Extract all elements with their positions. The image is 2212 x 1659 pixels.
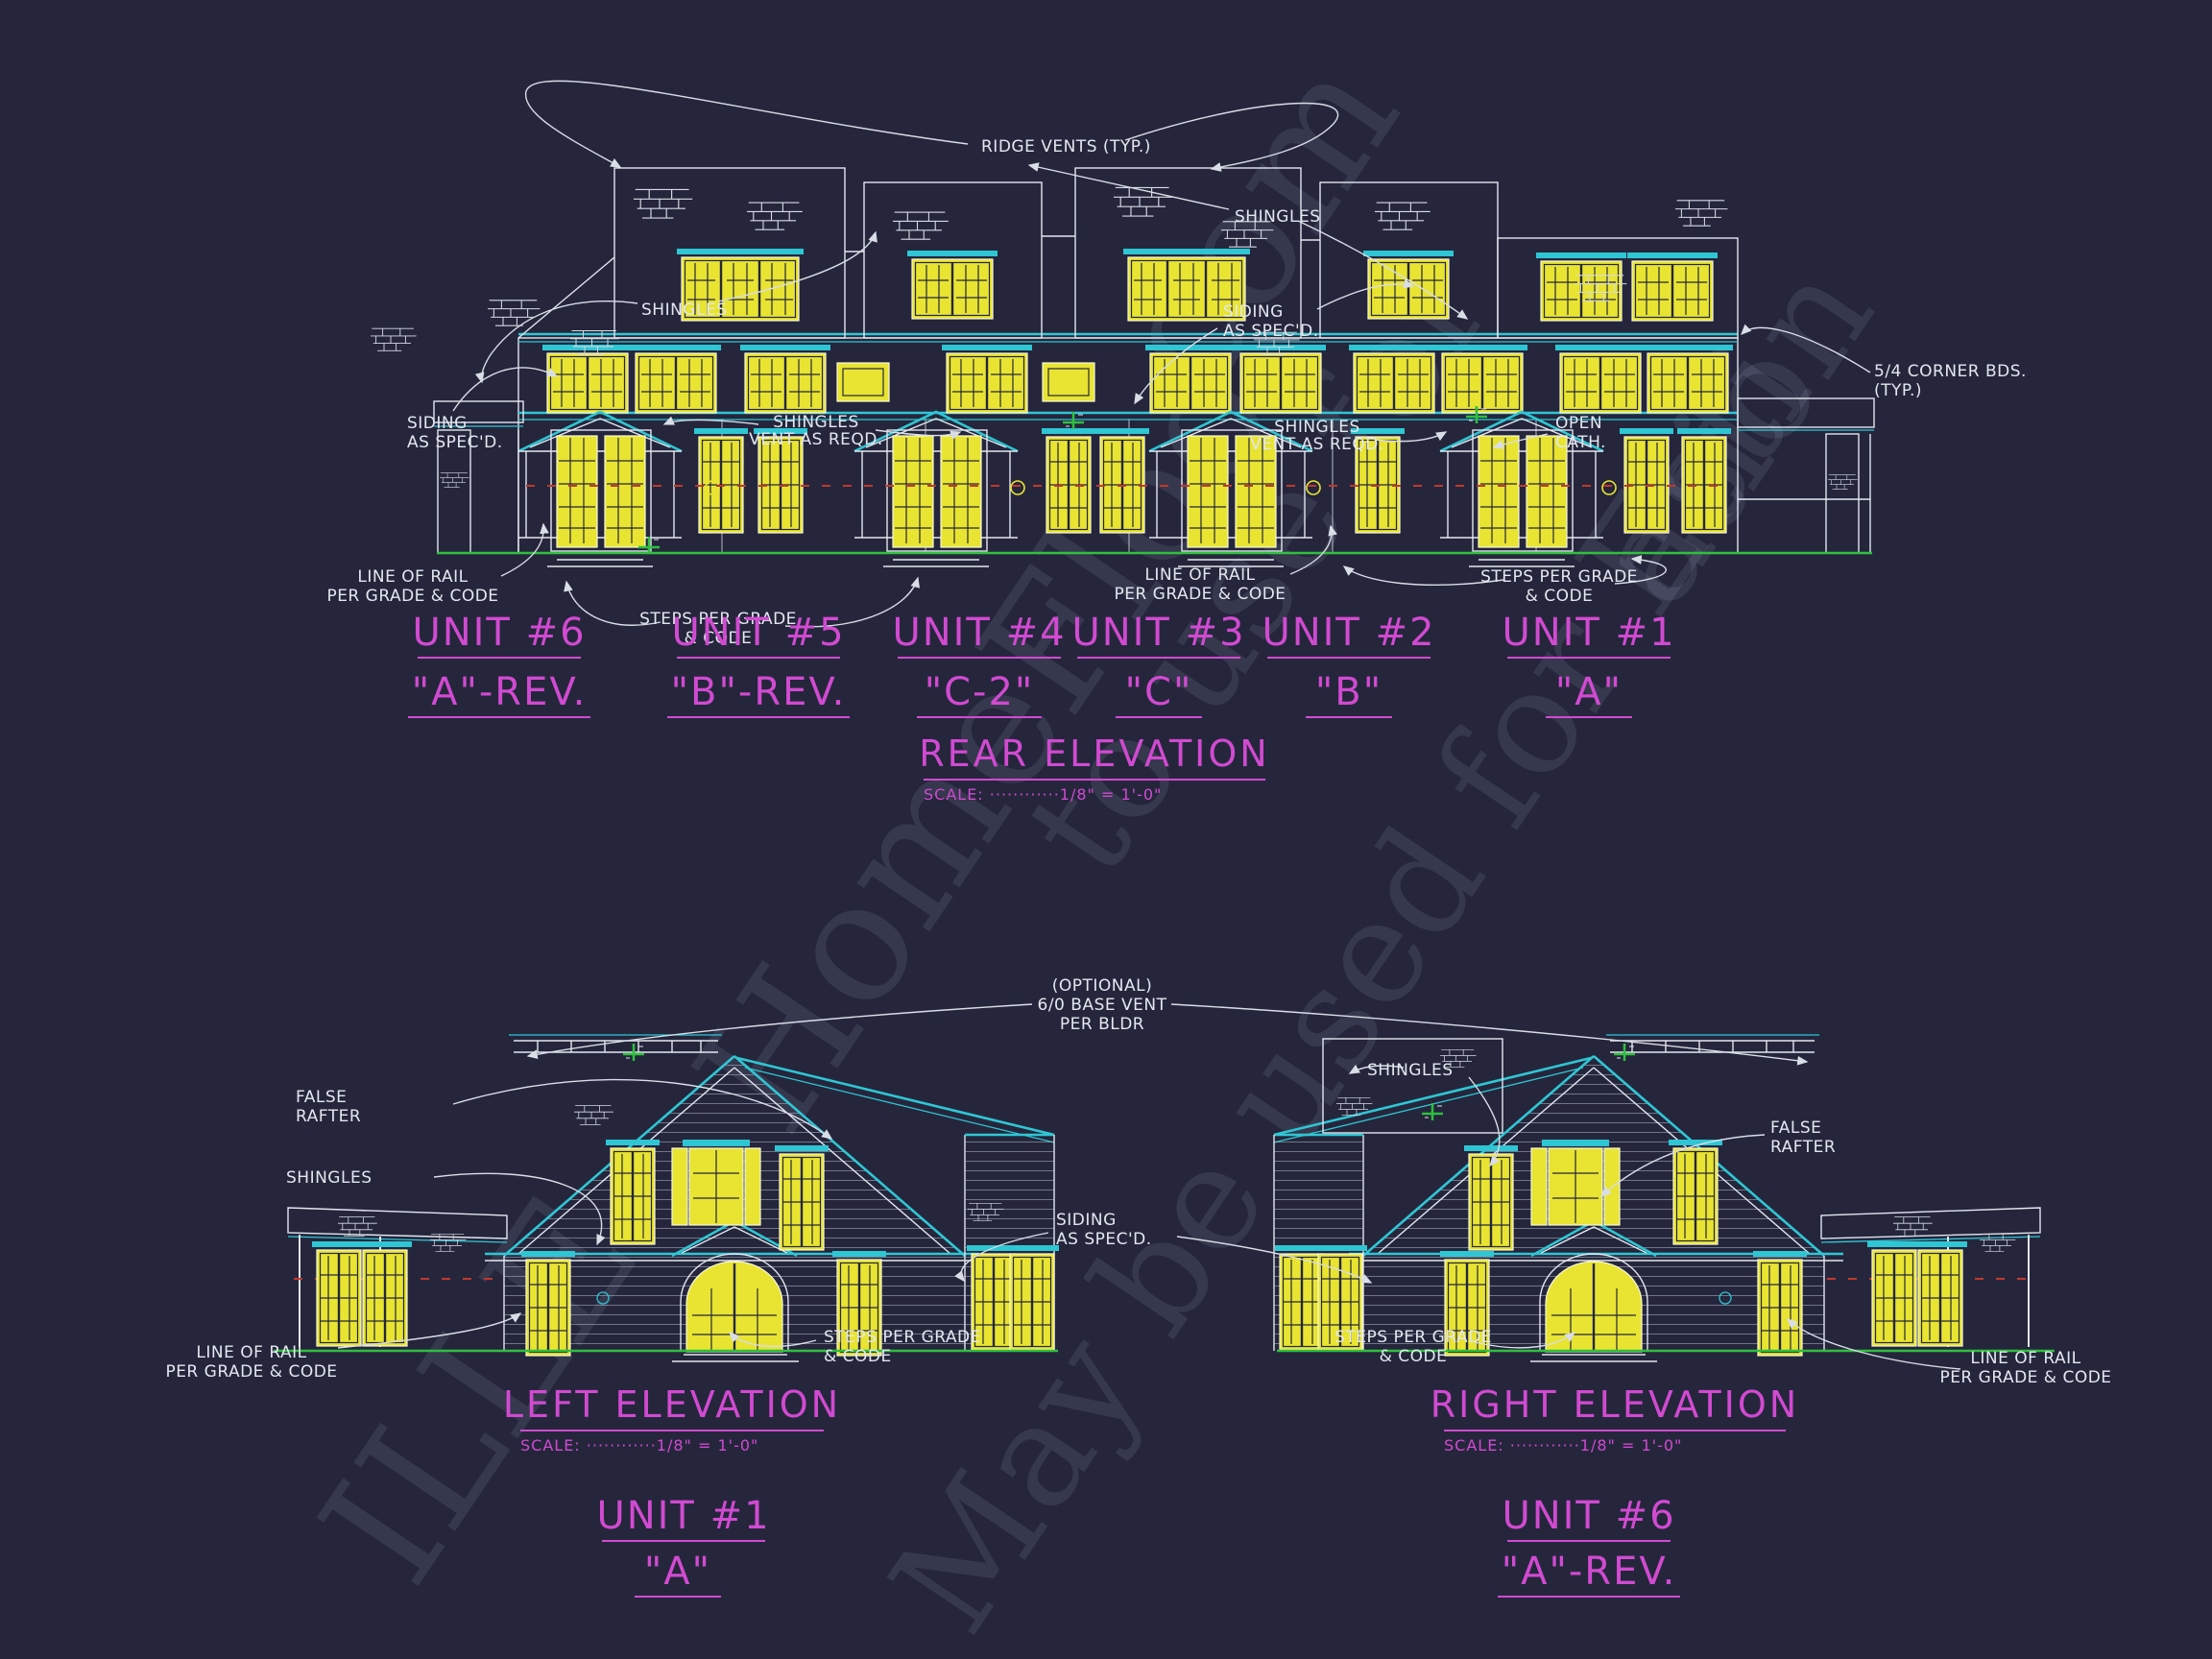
false-rafter-label: FALSE: [1770, 1118, 1821, 1138]
steps-label: & CODE: [824, 1347, 892, 1366]
ridge-vents-label: RIDGE VENTS (TYP.): [981, 137, 1151, 156]
porch-light: [1011, 481, 1024, 494]
unit-variant: "A": [1555, 670, 1623, 714]
drawing-scale: SCALE: ············1/8" = 1'-0": [520, 1436, 758, 1455]
window: [358, 1241, 412, 1346]
drawing-scale: SCALE: ············1/8" = 1'-0": [1444, 1436, 1682, 1455]
window: [1677, 428, 1731, 533]
unit-number: UNIT #1: [596, 1494, 770, 1538]
window: [907, 251, 998, 319]
unit-label: UNIT #6 "A"-REV.: [408, 611, 590, 717]
vent-panel: [837, 363, 889, 401]
vent-panel: [1043, 363, 1094, 401]
window: [1867, 1241, 1921, 1346]
optional-vent-label: (OPTIONAL): [1052, 976, 1153, 996]
optional-vent-label: PER BLDR: [1060, 1015, 1144, 1034]
unit-variant: "A"-REV.: [412, 670, 588, 714]
unit-number: UNIT #4: [892, 611, 1066, 655]
unit-variant: "C-2": [925, 670, 1035, 714]
window: [1536, 252, 1626, 321]
drawing-title: RIGHT ELEVATION: [1431, 1383, 1799, 1426]
line-of-rail-label: PER GRADE & CODE: [1939, 1368, 2111, 1387]
window: [1913, 1241, 1967, 1346]
steps-label: STEPS PER GRADE: [1480, 567, 1638, 587]
false-rafter-label: RAFTER: [296, 1107, 361, 1126]
elevation-sheet: HomeFloo com ILLE May be used for Esti t…: [0, 0, 2212, 1659]
shingles-label: SHINGLES: [286, 1168, 372, 1188]
window: [521, 1251, 575, 1356]
siding-label: AS SPEC'D.: [1056, 1230, 1152, 1249]
unit-number: UNIT #5: [671, 611, 845, 655]
drawing-title: LEFT ELEVATION: [503, 1383, 841, 1426]
shingles-label: SHINGLES: [641, 301, 727, 320]
siding-label: SIDING: [407, 414, 468, 433]
double-door: [551, 430, 651, 551]
window: [1145, 345, 1236, 413]
steps-label: STEPS PER GRADE: [1334, 1328, 1492, 1347]
window: [775, 1145, 829, 1250]
window: [1669, 1140, 1722, 1244]
window: [1042, 428, 1095, 533]
unit-number: UNIT #6: [412, 611, 586, 655]
window: [942, 345, 1032, 413]
window: [1464, 1145, 1518, 1250]
optional-vent-label: 6/0 BASE VENT: [1038, 996, 1167, 1015]
rear-title-block: REAR ELEVATION SCALE: ············1/8" =…: [919, 733, 1269, 804]
unit-variant: "B"-REV.: [671, 670, 847, 714]
open-cath-label: CATH.: [1555, 433, 1606, 452]
unit-variant: "A": [644, 1550, 711, 1594]
left-elevation-drawing: [274, 1035, 1059, 1361]
shingles-vent-label: VENT AS REQD.: [749, 430, 883, 449]
steps-label: & CODE: [1380, 1347, 1448, 1366]
window: [1620, 428, 1673, 533]
unit-number: UNIT #2: [1262, 611, 1435, 655]
right-title-block: RIGHT ELEVATION SCALE: ············1/8" …: [1431, 1383, 1799, 1597]
shingles-label: SHINGLES: [1235, 207, 1320, 227]
window: [1555, 345, 1646, 413]
unit-number: UNIT #6: [1502, 1494, 1675, 1538]
steps-label: & CODE: [1526, 587, 1594, 606]
window: [631, 345, 721, 413]
false-rafter-label: FALSE: [296, 1088, 347, 1107]
line-of-rail-label: PER GRADE & CODE: [165, 1362, 337, 1382]
window: [1095, 428, 1149, 533]
unit-variant: "A"-REV.: [1502, 1550, 1677, 1594]
false-rafter-label: RAFTER: [1770, 1138, 1836, 1157]
line-of-rail-label: LINE OF RAIL: [1970, 1349, 2080, 1368]
pitch-marker: [1063, 412, 1084, 429]
window: [1349, 345, 1439, 413]
right-elevation-drawing: SHINGLES: [1274, 1035, 2055, 1361]
open-cath-label: OPEN: [1555, 414, 1602, 433]
steps: [1530, 1355, 1657, 1361]
line-of-rail-label: LINE OF RAIL: [1144, 565, 1255, 585]
window: [694, 428, 748, 533]
unit-variant: "B": [1315, 670, 1382, 714]
window: [606, 1140, 660, 1244]
window: [312, 1241, 366, 1346]
unit-variant: "C": [1125, 670, 1193, 714]
window: [1643, 345, 1733, 413]
shuttered-window: [672, 1140, 760, 1225]
steps: [672, 1355, 799, 1361]
siding-label: SIDING: [1056, 1211, 1117, 1230]
shingles-vent-label: SHINGLES: [773, 413, 858, 432]
line-of-rail-label: LINE OF RAIL: [357, 567, 468, 587]
unit-number: UNIT #1: [1502, 611, 1675, 655]
window: [1627, 252, 1718, 321]
siding-label: AS SPEC'D.: [1223, 322, 1319, 341]
shingles-label: SHINGLES: [1367, 1061, 1453, 1080]
drawing-scale: SCALE: ············1/8" = 1'-0": [924, 785, 1162, 804]
unit-label: UNIT #5 "B"-REV.: [667, 611, 850, 717]
drawing-title: REAR ELEVATION: [919, 733, 1269, 775]
rear-elevation-drawing: [371, 168, 1874, 566]
left-title-block: LEFT ELEVATION SCALE: ············1/8" =…: [503, 1383, 841, 1597]
siding-label: AS SPEC'D.: [407, 433, 503, 452]
shingles-vent-label: SHINGLES: [1274, 418, 1359, 437]
siding-label: SIDING: [1223, 302, 1284, 322]
line-of-rail-label: PER GRADE & CODE: [326, 587, 498, 606]
line-of-rail-label: PER GRADE & CODE: [1114, 585, 1286, 604]
unit-number: UNIT #3: [1071, 611, 1245, 655]
window: [1753, 1251, 1807, 1356]
steps-label: STEPS PER GRADE: [824, 1328, 981, 1347]
corner-boards-label: (TYP.): [1874, 381, 1922, 400]
shuttered-window: [1531, 1140, 1620, 1225]
shingles-vent-label: VENT AS REQD.: [1250, 435, 1384, 454]
window: [1437, 345, 1527, 413]
window: [1005, 1245, 1059, 1350]
line-of-rail-label: LINE OF RAIL: [196, 1343, 306, 1362]
double-door: [887, 430, 987, 551]
corner-boards-label: 5/4 CORNER BDS.: [1874, 362, 2027, 381]
window: [740, 345, 830, 413]
